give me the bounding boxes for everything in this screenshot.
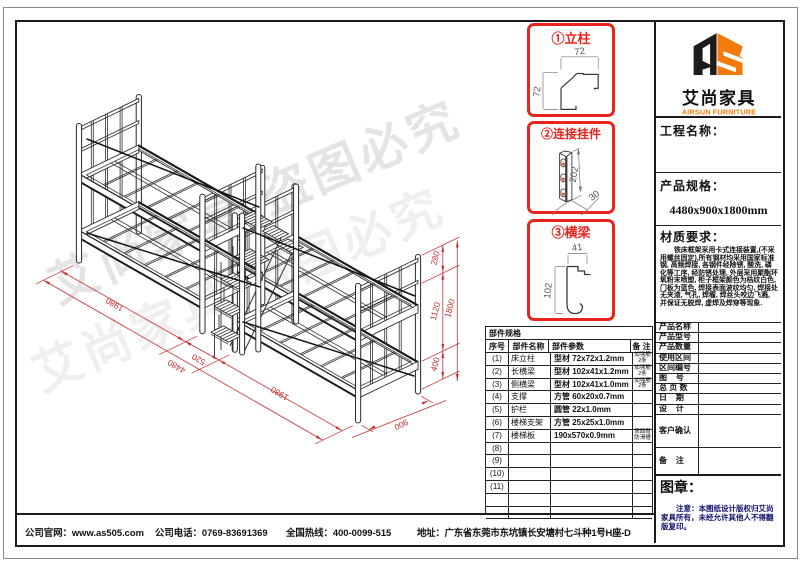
- svg-text:102: 102: [542, 282, 555, 299]
- svg-text:400: 400: [428, 356, 441, 373]
- svg-text:72: 72: [531, 86, 543, 98]
- svg-text:1120: 1120: [428, 301, 442, 322]
- svg-text:1980: 1980: [104, 295, 126, 313]
- svg-text:1800: 1800: [442, 298, 457, 319]
- svg-text:4480: 4480: [166, 357, 188, 375]
- svg-text:1980: 1980: [269, 384, 291, 402]
- svg-text:72: 72: [574, 46, 586, 58]
- svg-text:AIRSUN FURNITURE: AIRSUN FURNITURE: [682, 108, 756, 117]
- svg-text:900: 900: [393, 417, 410, 432]
- svg-text:280: 280: [428, 250, 441, 267]
- svg-text:艾尚家具: 艾尚家具: [682, 88, 756, 108]
- svg-text:202: 202: [568, 166, 582, 184]
- svg-text:41: 41: [571, 242, 583, 254]
- svg-text:30: 30: [587, 188, 602, 203]
